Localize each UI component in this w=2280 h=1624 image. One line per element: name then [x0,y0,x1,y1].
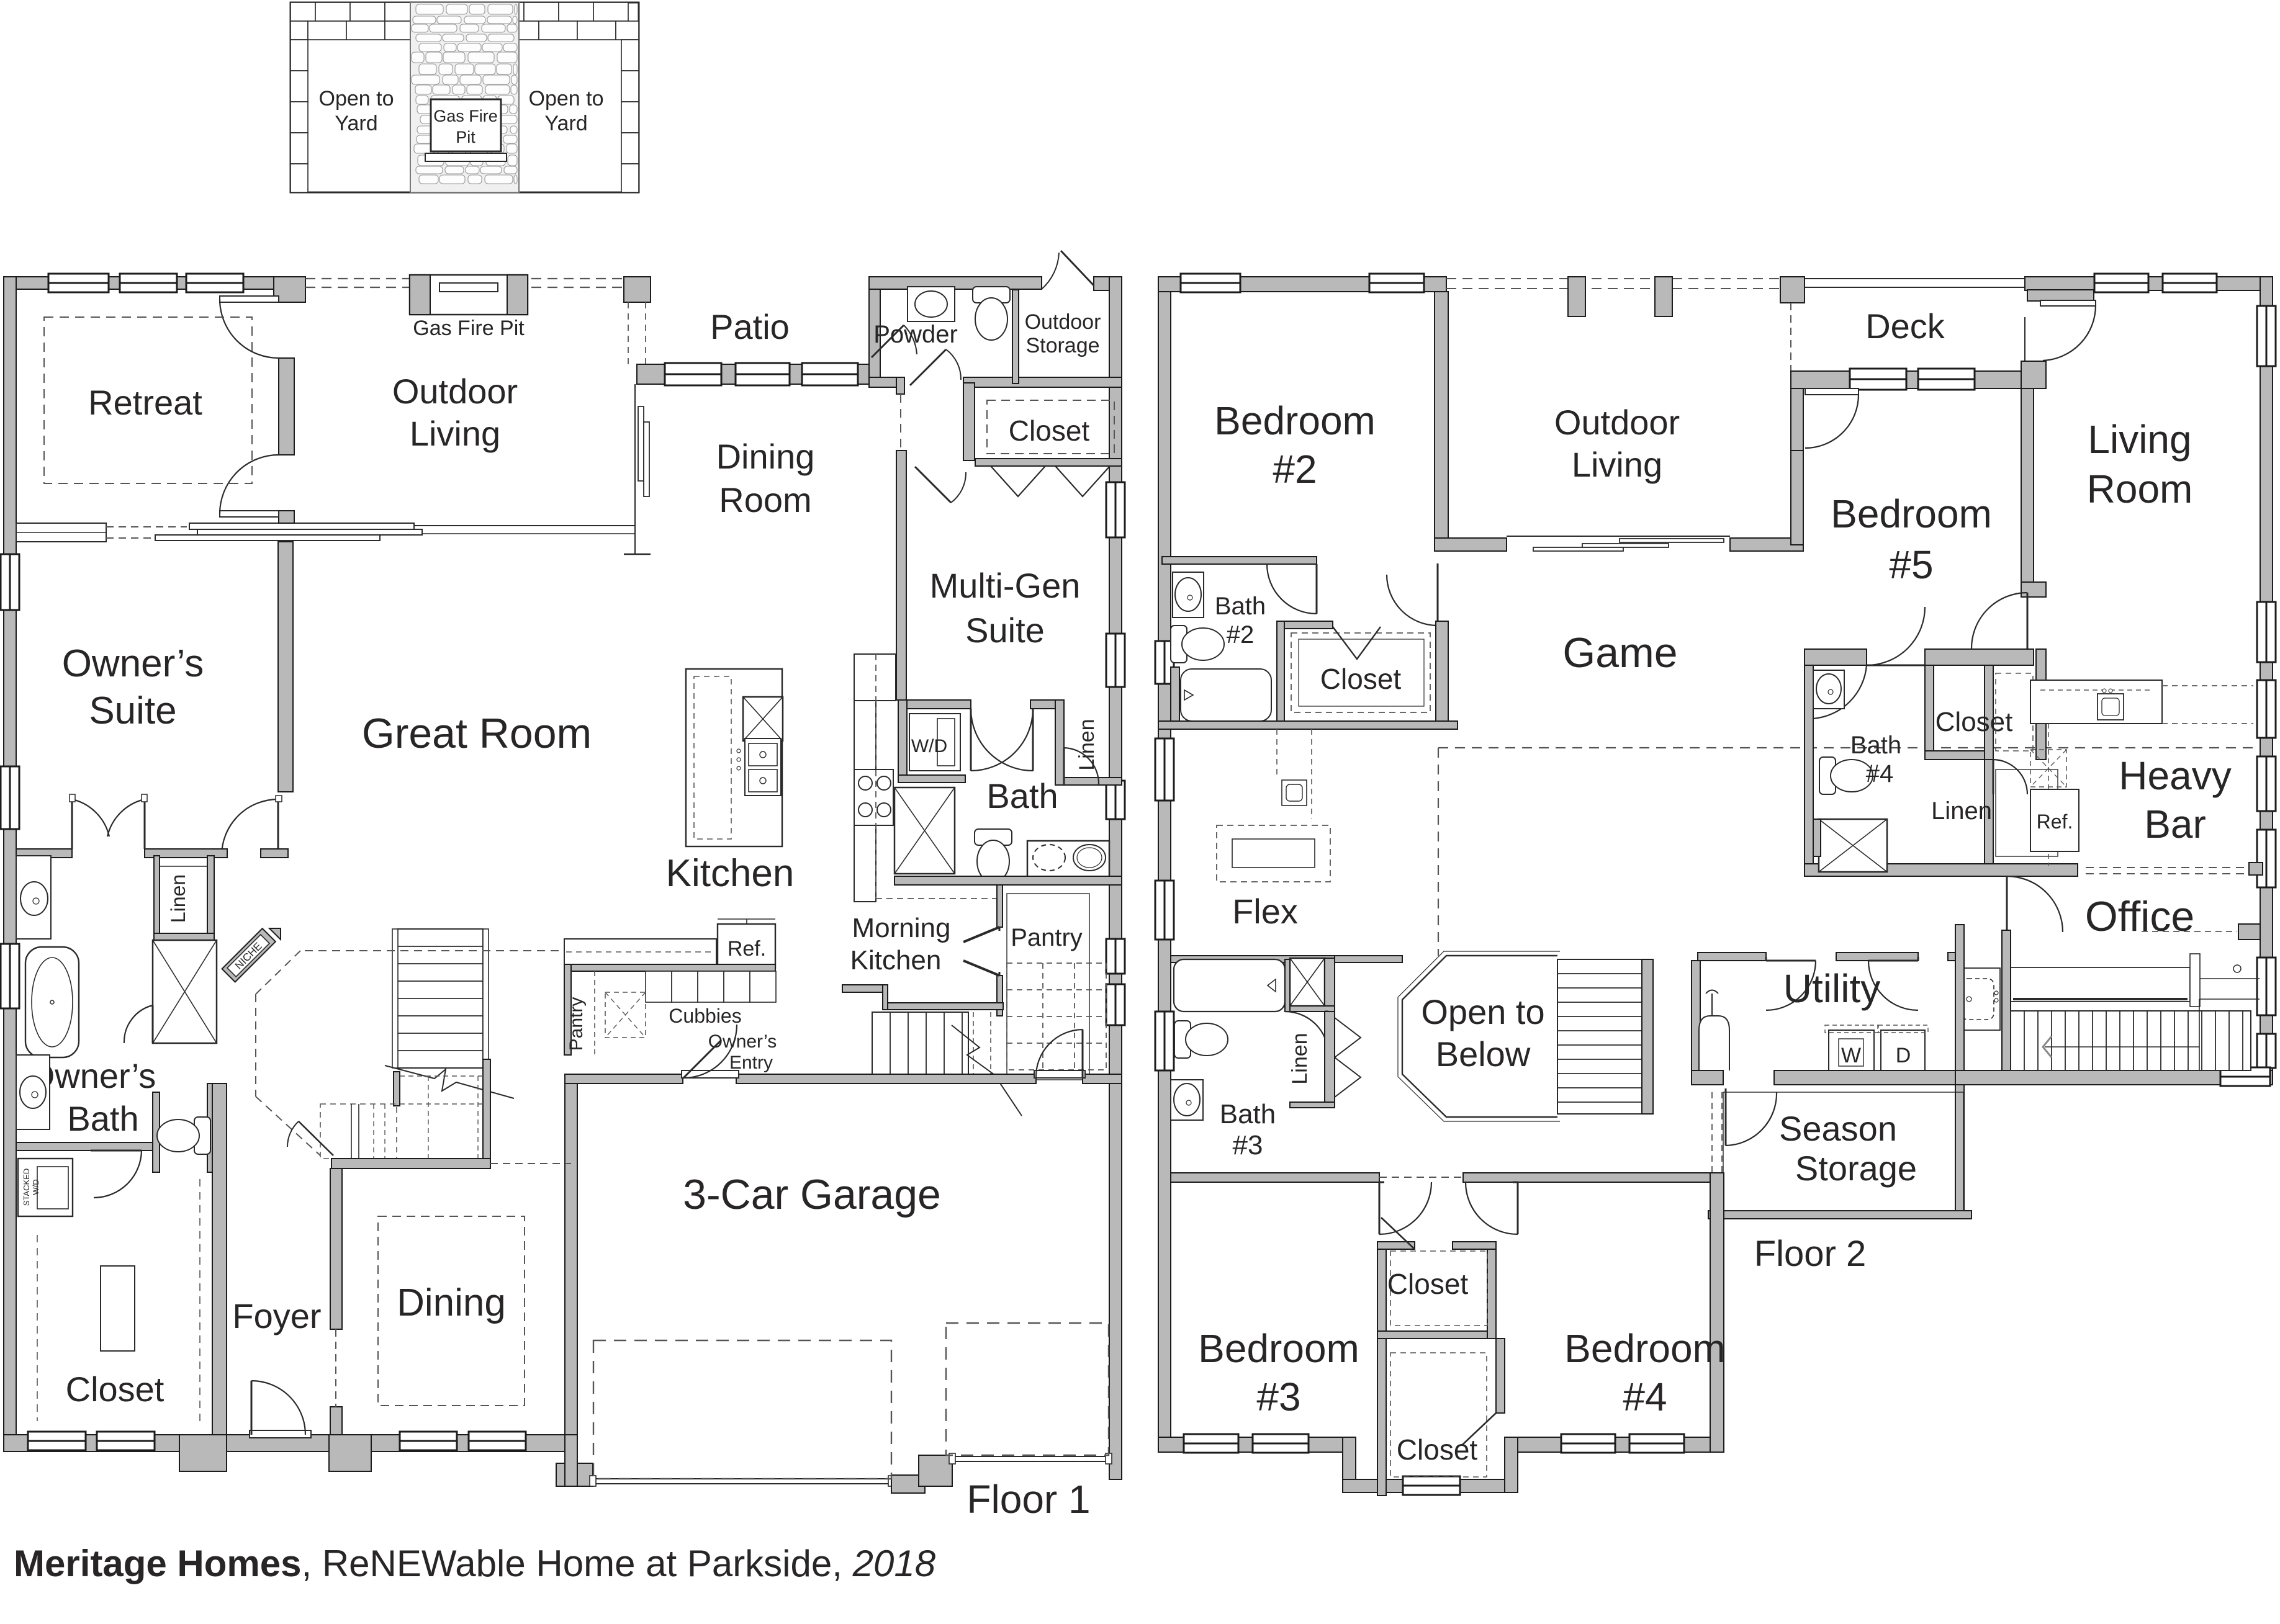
svg-text:W/D: W/D [31,1179,40,1195]
svg-text:Bedroom: Bedroom [1564,1326,1726,1371]
svg-text:Retreat: Retreat [88,383,202,422]
svg-text:Closet: Closet [1935,707,2013,737]
svg-text:#2: #2 [1227,621,1255,648]
svg-text:#2: #2 [1273,447,1317,491]
svg-text:Yard: Yard [335,112,377,135]
svg-text:Open to: Open to [1421,992,1544,1031]
svg-text:Morning: Morning [852,913,951,943]
svg-text:Outdoor: Outdoor [392,372,518,411]
svg-text:Ref.: Ref. [728,937,766,961]
svg-text:Linen: Linen [1931,797,1992,825]
svg-text:Linen: Linen [1288,1033,1312,1084]
svg-text:Game: Game [1562,629,1677,676]
svg-text:#4: #4 [1623,1375,1667,1419]
svg-text:Gas Fire: Gas Fire [433,107,498,125]
svg-text:Closet: Closet [1009,415,1090,447]
svg-text:Living: Living [1572,445,1662,484]
svg-text:Owner’s: Owner’s [62,642,204,685]
svg-text:Patio: Patio [710,307,790,346]
svg-text:Dining: Dining [397,1281,506,1324]
svg-text:W: W [1841,1044,1861,1067]
svg-text:Owner’s: Owner’s [708,1031,777,1052]
svg-text:Heavy: Heavy [2119,753,2231,798]
svg-text:W/D: W/D [911,736,947,756]
svg-text:Powder: Powder [873,321,958,348]
svg-text:Open to: Open to [529,87,604,110]
svg-text:Bath: Bath [67,1099,138,1138]
svg-text:Closet: Closet [1387,1268,1469,1300]
svg-text:Bar: Bar [2144,802,2206,846]
svg-text:Storage: Storage [1025,334,1099,357]
svg-text:Meritage Homes, ReNEWable Home: Meritage Homes, ReNEWable Home at Parksi… [14,1543,936,1584]
svg-text:Pantry: Pantry [1011,924,1083,951]
svg-text:Open to: Open to [319,87,394,110]
svg-text:Bath: Bath [986,776,1058,815]
svg-text:Season: Season [1779,1109,1897,1148]
svg-text:Kitchen: Kitchen [850,945,942,976]
svg-text:Bath: Bath [1850,732,1901,759]
svg-text:#4: #4 [1866,760,1894,787]
svg-text:Below: Below [1436,1034,1531,1074]
svg-text:3-Car Garage: 3-Car Garage [683,1171,941,1218]
svg-text:Floor 1: Floor 1 [967,1477,1090,1522]
svg-text:Living: Living [2088,417,2191,462]
svg-text:Cubbies: Cubbies [669,1005,741,1027]
svg-text:Linen: Linen [167,874,189,923]
svg-text:Pantry: Pantry [566,997,587,1051]
svg-text:Outdoor: Outdoor [1025,310,1101,334]
svg-text:Dining: Dining [716,437,815,476]
svg-text:Room: Room [719,480,811,519]
svg-text:Bedroom: Bedroom [1214,398,1376,443]
svg-text:Office: Office [2085,893,2194,940]
svg-text:#3: #3 [1233,1130,1263,1160]
svg-text:D: D [1896,1044,1911,1067]
svg-text:Living: Living [410,414,500,453]
svg-text:#3: #3 [1256,1375,1300,1419]
svg-text:Entry: Entry [729,1052,773,1073]
svg-text:Room: Room [2087,467,2193,511]
svg-text:Deck: Deck [1865,307,1945,346]
svg-text:Kitchen: Kitchen [666,852,795,895]
svg-text:Foyer: Foyer [232,1296,321,1335]
svg-text:Yard: Yard [544,112,587,135]
svg-text:Closet: Closet [66,1370,164,1409]
svg-text:Ref.: Ref. [2037,810,2073,833]
svg-text:STACKED: STACKED [22,1169,31,1206]
svg-text:Multi-Gen: Multi-Gen [930,566,1081,605]
svg-text:Outdoor: Outdoor [1554,403,1680,442]
svg-text:Suite: Suite [89,689,176,732]
svg-text:Bath: Bath [1215,593,1266,620]
svg-text:Bedroom: Bedroom [1831,491,1992,536]
svg-text:Flex: Flex [1232,892,1298,931]
svg-text:Floor 2: Floor 2 [1754,1234,1867,1274]
svg-text:#5: #5 [1889,542,1933,587]
svg-text:Closet: Closet [1320,663,1402,695]
svg-text:Bath: Bath [1220,1099,1276,1129]
svg-text:Storage: Storage [1795,1149,1917,1188]
svg-text:Bedroom: Bedroom [1198,1326,1359,1371]
svg-text:Gas Fire Pit: Gas Fire Pit [413,316,525,340]
svg-text:Closet: Closet [1397,1433,1478,1466]
svg-text:Great Room: Great Room [362,710,592,757]
svg-text:Linen: Linen [1075,719,1099,770]
svg-text:Suite: Suite [965,611,1045,650]
svg-text:Pit: Pit [456,128,475,146]
svg-text:Utility: Utility [1783,966,1880,1011]
